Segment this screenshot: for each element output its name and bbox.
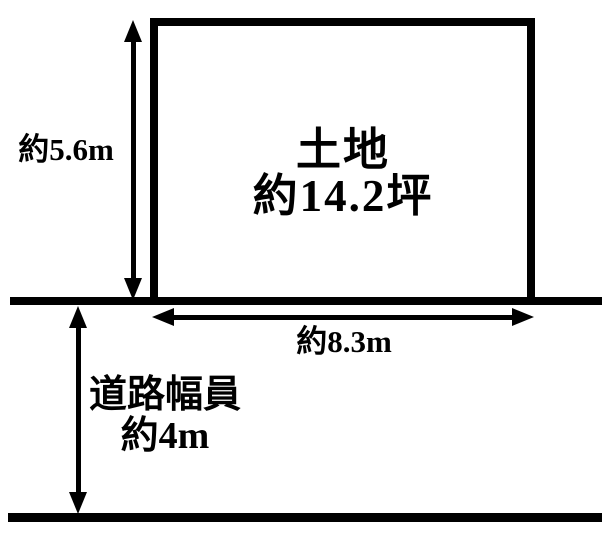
depth-dimension-label: 約5.6m [4, 134, 128, 167]
land-plot-diagram: 土地 約14.2坪 約5.6m 約8.3m 道路幅員 約4m [0, 0, 616, 535]
arrowhead-up-icon [69, 306, 87, 328]
land-label: 土地 約14.2坪 [158, 127, 528, 219]
frontage-dimension-arrow [172, 315, 514, 320]
arrowhead-up-icon [124, 20, 142, 42]
arrowhead-down-icon [69, 492, 87, 514]
land-name: 土地 [158, 127, 528, 173]
road-edge-line-near [10, 297, 602, 305]
road-width-label-line1: 道路幅員 [68, 375, 262, 416]
frontage-dimension-label: 約8.3m [284, 326, 404, 359]
arrowhead-left-icon [152, 308, 174, 326]
arrowhead-right-icon [512, 308, 534, 326]
depth-dimension-arrow [131, 40, 136, 280]
road-width-label-line2: 約4m [68, 416, 262, 457]
land-area: 約14.2坪 [158, 173, 528, 219]
road-width-label: 道路幅員 約4m [68, 375, 262, 457]
road-edge-line-far [8, 513, 602, 522]
